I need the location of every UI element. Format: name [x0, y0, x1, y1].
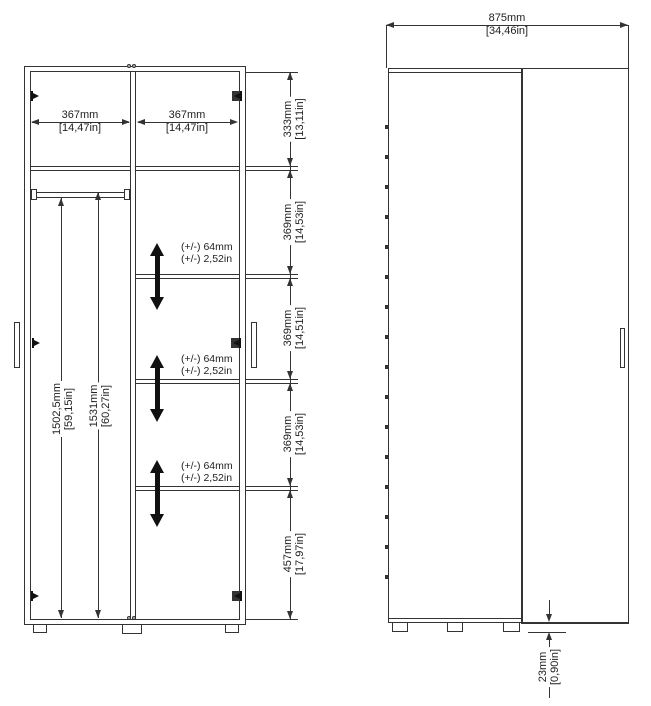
shelf-adjust-note: (+/-) 64mm (+/-) 2,52in	[181, 242, 233, 265]
rail-bracket-left	[31, 189, 37, 200]
dim-arrow	[287, 266, 293, 274]
dim-mm: 369mm	[282, 201, 294, 243]
note-inch: (+/-) 2,52in	[181, 254, 233, 266]
door-handle	[14, 322, 20, 368]
foot	[225, 624, 239, 633]
dim-mm: 457mm	[282, 533, 294, 575]
hinge-icon	[32, 338, 42, 348]
dim-inch: [34,46in]	[486, 25, 528, 38]
dim-arrow	[287, 170, 293, 178]
note-inch: (+/-) 2,52in	[181, 366, 233, 378]
dim-arrow	[546, 614, 552, 622]
dim-ext-line	[386, 25, 387, 68]
dim-inch: [14,53in]	[294, 413, 306, 455]
hinge-nub-strip	[385, 125, 388, 595]
dim-arrow	[58, 610, 64, 618]
note-mm: (+/-) 64mm	[181, 354, 233, 366]
dim-arrow	[386, 22, 394, 28]
dim-inch: [59,15in]	[63, 383, 75, 435]
dim-label-section-4: 369mm [14,53in]	[282, 411, 306, 457]
hanging-rail-top	[36, 192, 125, 193]
dim-label-interior-height: 1531mm [60,27in]	[88, 383, 112, 430]
cam-fitting-icon	[127, 64, 131, 68]
hinge-icon	[31, 91, 41, 101]
shelf-line	[31, 170, 130, 171]
dim-arrow	[95, 192, 101, 200]
divider-left-line	[130, 71, 131, 620]
shelf-line	[136, 166, 239, 167]
dim-label-width-left: 367mm [14,47in]	[59, 109, 101, 135]
shelf-adjust-arrow-icon	[150, 460, 165, 527]
cam-fitting-icon	[132, 64, 136, 68]
dim-arrow	[287, 158, 293, 166]
divider-right-line	[135, 71, 136, 620]
dim-arrow	[31, 119, 39, 125]
dim-mm: 333mm	[282, 98, 294, 139]
left-door-bottom-edge	[389, 618, 522, 619]
right-door-bottom-edge	[521, 623, 629, 624]
hanging-rail-bottom	[36, 197, 125, 198]
dim-line	[549, 600, 550, 614]
cam-fitting-icon	[132, 616, 136, 620]
foot	[447, 622, 463, 632]
dim-inch: [60,27in]	[100, 385, 112, 428]
dim-inch: [13,11in]	[294, 98, 306, 139]
dim-arrow	[287, 383, 293, 391]
cam-fitting-icon	[127, 616, 131, 620]
dim-arrow	[287, 478, 293, 486]
carcass-left-outer	[24, 66, 25, 625]
door-handle	[620, 328, 625, 368]
shelf-adjust-arrow-icon	[150, 243, 165, 310]
dim-label-rail-height: 1502,5mm [59,15in]	[51, 381, 75, 437]
dim-label-overall-width: 875mm [34,46in]	[486, 12, 528, 38]
dim-label-section-2: 369mm [14,53in]	[282, 199, 306, 245]
dim-label-section-3: 369mm [14,51in]	[282, 305, 306, 351]
hinge-icon	[232, 591, 242, 601]
dim-inch: [14,53in]	[294, 201, 306, 243]
dim-label-width-right: 367mm [14,47in]	[166, 109, 208, 135]
shelf-adjust-arrow-icon	[150, 355, 165, 422]
dim-arrow	[137, 119, 145, 125]
dim-mm: 367mm	[166, 109, 208, 122]
front-right-edge	[628, 68, 629, 623]
carcass-top-inner	[30, 71, 240, 72]
door-handle	[251, 322, 257, 368]
dim-inch: [14,47in]	[166, 122, 208, 135]
dim-mm: 23mm	[537, 649, 549, 685]
dim-ext-line	[246, 619, 298, 620]
front-left-edge	[388, 68, 389, 622]
dim-inch: [17,97in]	[294, 533, 306, 575]
rail-bracket-right	[124, 189, 130, 200]
dim-mm: 1531mm	[88, 385, 100, 428]
dim-arrow	[620, 22, 628, 28]
dim-arrow	[287, 278, 293, 286]
shelf-adjust-note: (+/-) 64mm (+/-) 2,52in	[181, 461, 233, 484]
dim-mm: 875mm	[486, 12, 528, 25]
hinge-icon	[232, 91, 242, 101]
note-mm: (+/-) 64mm	[181, 242, 233, 254]
dim-mm: 1502,5mm	[51, 383, 63, 435]
dim-mm: 369mm	[282, 307, 294, 349]
dim-arrow	[287, 490, 293, 498]
dim-arrow	[58, 198, 64, 206]
note-mm: (+/-) 64mm	[181, 461, 233, 473]
shelf-line	[136, 170, 239, 171]
shelf-line	[31, 166, 130, 167]
dim-arrow	[287, 371, 293, 379]
dim-inch: [14,51in]	[294, 307, 306, 349]
dim-arrow	[287, 611, 293, 619]
dim-mm: 367mm	[59, 109, 101, 122]
carcass-right-outer	[245, 66, 246, 625]
dim-ext-line	[628, 25, 629, 68]
dim-arrow	[122, 119, 130, 125]
dim-label-section-5: 457mm [17,97in]	[282, 531, 306, 577]
carcass-left-inner	[30, 71, 31, 620]
left-door-top-edge	[389, 72, 522, 73]
dim-arrow	[287, 72, 293, 80]
hinge-icon	[31, 591, 41, 601]
shelf-adjust-note: (+/-) 64mm (+/-) 2,52in	[181, 354, 233, 377]
dim-mm: 369mm	[282, 413, 294, 455]
technical-drawing-wardrobe: 367mm [14,47in] 367mm [14,47in] 1502,5mm…	[0, 0, 651, 706]
foot	[503, 622, 520, 632]
dim-arrow	[230, 119, 238, 125]
dim-arrow	[95, 610, 101, 618]
dim-inch: [14,47in]	[59, 122, 101, 135]
dim-label-section-1: 333mm [13,11in]	[282, 96, 306, 141]
note-inch: (+/-) 2,52in	[181, 473, 233, 485]
foot	[122, 624, 142, 634]
front-top-edge	[388, 68, 629, 69]
dim-label-floor-gap: 23mm [0,90in]	[537, 647, 561, 687]
dim-arrow	[546, 632, 552, 640]
dim-inch: [0,90in]	[549, 649, 561, 685]
hinge-icon	[231, 338, 241, 348]
door-split-line	[521, 68, 523, 623]
foot	[33, 624, 47, 633]
foot	[392, 622, 408, 632]
